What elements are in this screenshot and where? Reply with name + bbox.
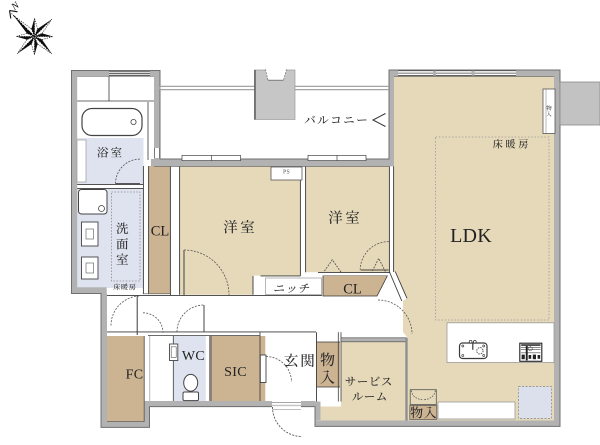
svg-text:WC: WC <box>182 349 205 364</box>
svg-text:CL: CL <box>343 282 362 298</box>
svg-text:FC: FC <box>126 367 144 382</box>
svg-text:SIC: SIC <box>224 365 247 380</box>
svg-text:CL: CL <box>151 223 170 239</box>
svg-text:PS: PS <box>283 170 290 176</box>
svg-text:LDK: LDK <box>450 225 492 247</box>
